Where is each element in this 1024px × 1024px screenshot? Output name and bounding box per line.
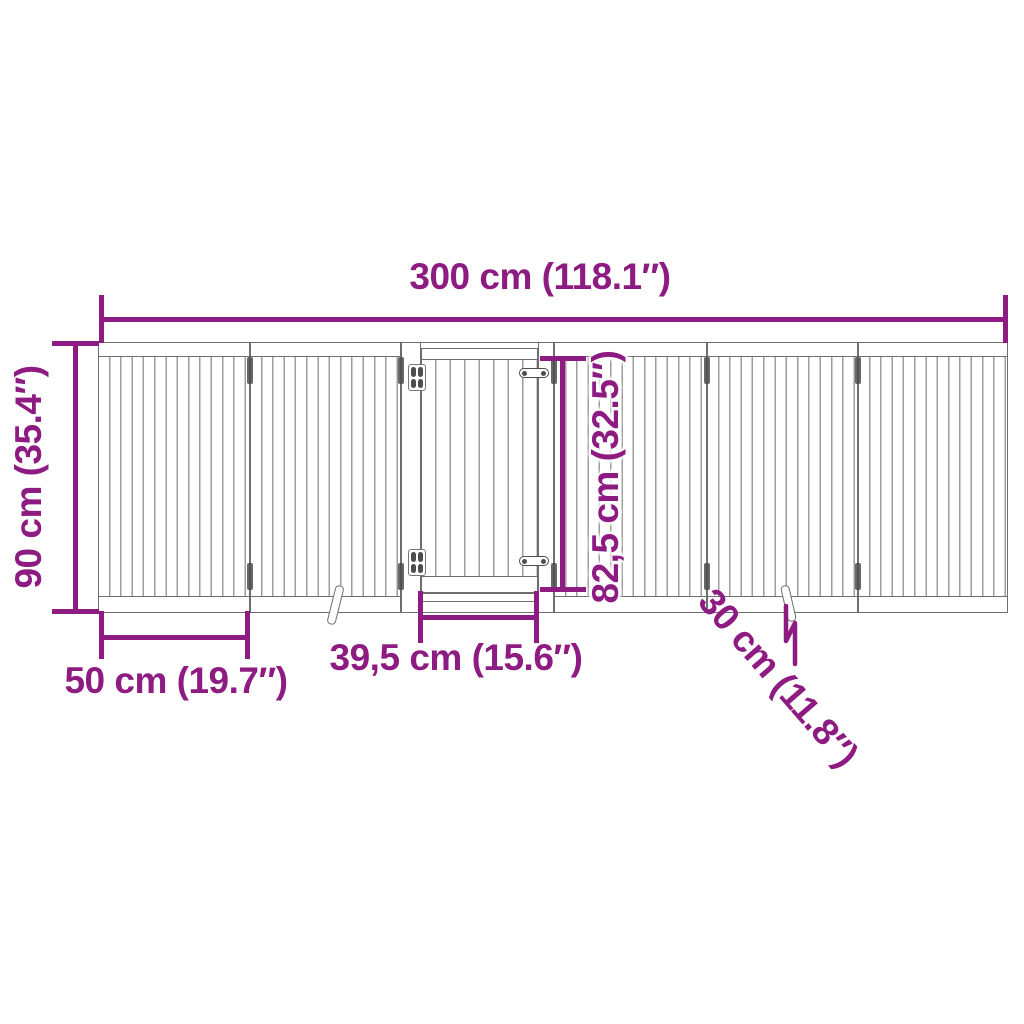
- gate-door-slats: [422, 359, 537, 577]
- gate-panel-6-slats: [859, 356, 1007, 597]
- height-label: 90 cm (35.4″): [8, 365, 50, 588]
- door-width-label: 39,5 cm (15.6″): [330, 637, 583, 679]
- door-width-tick-left: [418, 591, 423, 643]
- fold-hinge-icon: [247, 563, 253, 590]
- height-dimension-line: [73, 343, 78, 612]
- fold-hinge-icon: [398, 357, 404, 384]
- product-dimension-diagram: 300 cm (118.1″) 90 cm (35.4″) 50 cm (19.…: [0, 0, 1024, 1024]
- panel-width-dimension-line: [99, 635, 250, 640]
- door-height-tick-bottom: [540, 587, 586, 592]
- gate-panel-5: [707, 342, 858, 613]
- fold-hinge-icon: [551, 357, 557, 384]
- fold-hinge-icon: [704, 563, 710, 590]
- door-latch-top-icon: [519, 368, 549, 378]
- door-width-tick-right: [534, 591, 539, 643]
- gate-panel-2: [250, 342, 401, 613]
- gate-panel-5-slats: [708, 356, 857, 597]
- door-threshold: [421, 593, 538, 602]
- fold-hinge-icon: [247, 357, 253, 384]
- height-tick-bottom: [52, 609, 99, 614]
- door-height-dimension-line: [560, 358, 565, 590]
- gate-panel-4-slats: [555, 356, 706, 597]
- fold-hinge-icon: [398, 563, 404, 590]
- gate-panel-4: [554, 342, 707, 613]
- fold-hinge-icon: [855, 563, 861, 590]
- door-height-tick-top: [540, 356, 586, 361]
- fold-hinge-icon: [551, 563, 557, 590]
- gate-panel-1: [98, 342, 250, 613]
- door-hinge-bottom-icon: [408, 549, 426, 576]
- total-width-tick-right: [1003, 295, 1008, 343]
- door-width-dimension-line: [420, 615, 538, 620]
- total-width-tick-left: [99, 295, 104, 343]
- panel-width-tick-right: [245, 611, 250, 659]
- door-latch-bottom-icon: [519, 556, 549, 566]
- fold-hinge-icon: [704, 357, 710, 384]
- height-tick-top: [52, 341, 99, 346]
- panel-width-label: 50 cm (19.7″): [64, 660, 287, 702]
- panel-width-tick-left: [99, 611, 104, 659]
- fold-hinge-icon: [855, 357, 861, 384]
- total-width-label: 300 cm (118.1″): [409, 256, 670, 298]
- gate-panel-2-slats: [251, 356, 400, 597]
- door-hinge-top-icon: [408, 364, 426, 391]
- door-section-bottom-rail: [401, 601, 554, 613]
- door-height-label: 82,5 cm (32.5″): [585, 351, 627, 604]
- gate-panel-1-slats: [99, 356, 249, 597]
- total-width-dimension-line: [99, 317, 1008, 322]
- gate-panel-6: [858, 342, 1008, 613]
